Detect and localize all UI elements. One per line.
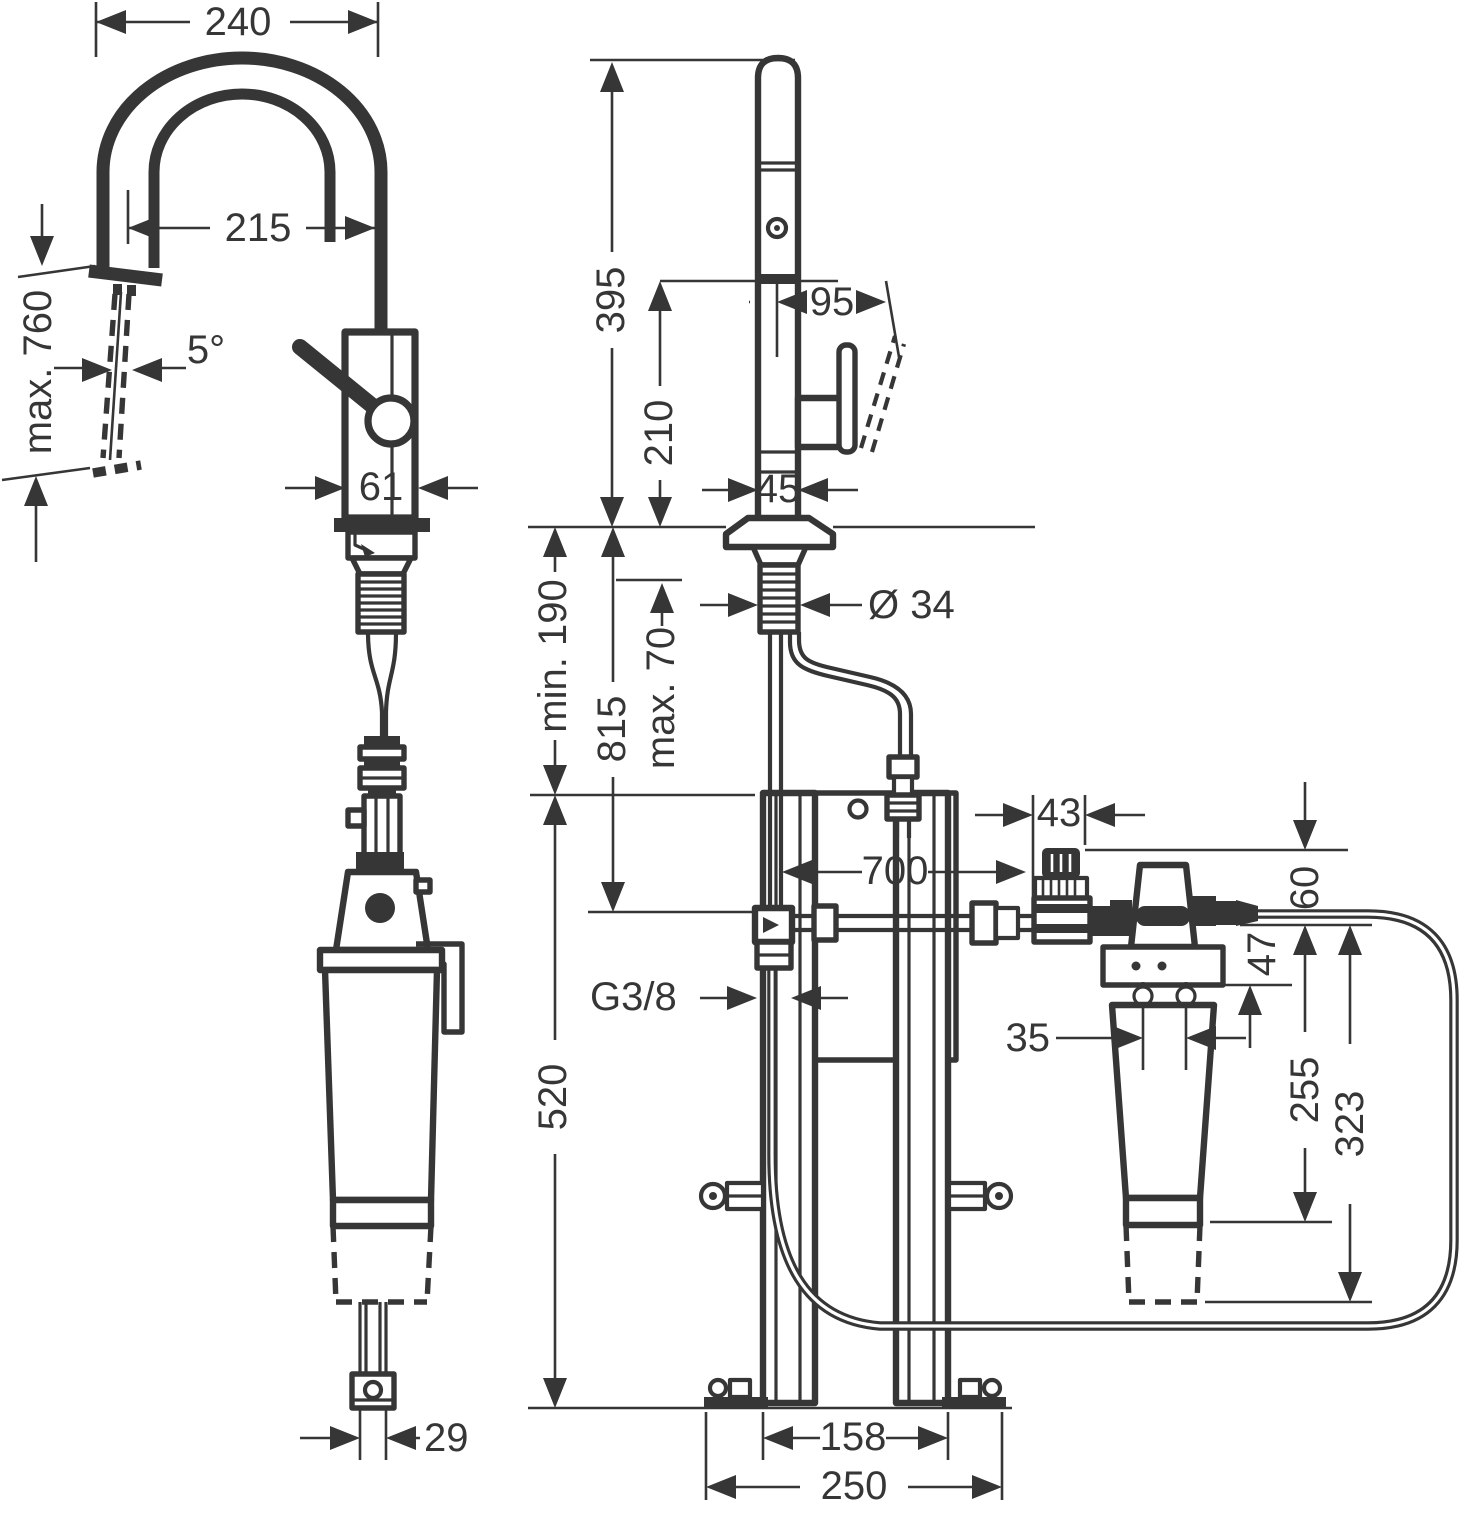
- dim-60: 60: [1283, 866, 1327, 911]
- dim-max-760: max. 760: [16, 290, 60, 455]
- hose-connector: [360, 736, 404, 796]
- dim-250: 250: [821, 1464, 888, 1508]
- dim-255: 255: [1283, 1057, 1327, 1124]
- dim-95: 95: [810, 280, 855, 324]
- dim-max-70: max. 70: [639, 627, 683, 769]
- filter-cartridge-side: [325, 970, 437, 1200]
- escutcheon: [726, 518, 833, 547]
- dim-323: 323: [1328, 1091, 1372, 1158]
- dim-815: 815: [590, 696, 634, 763]
- dim-240: 240: [205, 0, 272, 44]
- dim-min-190: min. 190: [531, 579, 575, 732]
- threaded-shank-side: [358, 574, 404, 632]
- dim-g38: G3/8: [590, 975, 677, 1019]
- aerator-nub: [113, 284, 122, 295]
- frame-foot-left: [704, 1380, 768, 1409]
- hose-foot: [352, 1374, 394, 1408]
- faucet-front: [726, 58, 904, 632]
- handle-lever-front: [839, 345, 855, 452]
- drawing-canvas: 240 215 max. 760 5° 61 29 395 210 95 45 …: [0, 0, 1470, 1515]
- dim-35: 35: [1006, 1016, 1051, 1060]
- aerator-nub: [127, 285, 136, 296]
- filter-unit-side: [320, 852, 462, 1408]
- technical-drawing: 240 215 max. 760 5° 61 29 395 210 95 45 …: [0, 0, 1470, 1515]
- dim-5deg: 5°: [187, 328, 225, 372]
- dim-520: 520: [531, 1064, 575, 1131]
- spout-outlet: [89, 271, 162, 280]
- dim-45: 45: [756, 467, 801, 511]
- pressure-regulator: [1034, 848, 1090, 942]
- dim-210: 210: [637, 400, 681, 467]
- frame-foot-right: [942, 1380, 1006, 1409]
- dim-158: 158: [820, 1415, 887, 1459]
- handle-box-front: [798, 398, 843, 447]
- dim-395: 395: [589, 267, 633, 334]
- side-view-faucet: [89, 58, 462, 1408]
- dim-61: 61: [359, 465, 404, 509]
- dim-dia-34: Ø 34: [868, 583, 955, 627]
- dimension-annotations: 240 215 max. 760 5° 61 29 395 210 95 45 …: [2, 0, 1372, 1508]
- wall-bracket-left: [701, 1183, 763, 1209]
- dim-29: 29: [424, 1416, 469, 1460]
- threaded-shank-front: [760, 565, 798, 632]
- wall-bracket-right: [949, 1183, 1011, 1209]
- dim-700: 700: [862, 849, 929, 893]
- dim-47: 47: [1240, 932, 1284, 977]
- dim-215: 215: [225, 206, 292, 250]
- pullout-spray-ghost: [93, 292, 141, 473]
- dim-43: 43: [1037, 791, 1082, 835]
- handle-pivot: [368, 398, 414, 444]
